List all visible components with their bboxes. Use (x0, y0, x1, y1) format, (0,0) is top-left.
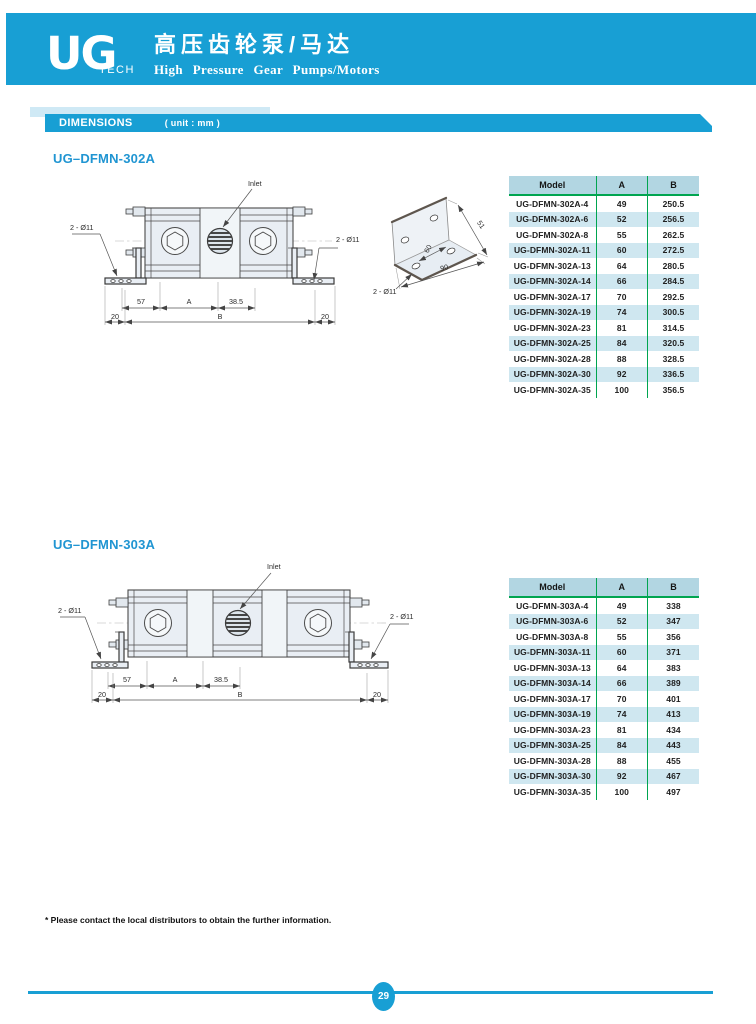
model-cell: UG-DFMN-302A-23 (509, 320, 596, 336)
b-cell: 272.5 (648, 243, 700, 259)
table-row: UG-DFMN-302A-14 66 284.5 (509, 274, 699, 290)
a-cell: 66 (596, 676, 648, 692)
header-title-chinese: 高压齿轮泵/马达 (154, 33, 354, 57)
table-row: UG-DFMN-303A-23 81 434 (509, 722, 699, 738)
b-cell: 371 (648, 645, 700, 661)
dim-A: A (187, 297, 192, 306)
model-cell: UG-DFMN-303A-4 (509, 597, 596, 614)
table-row: UG-DFMN-303A-4 49 338 (509, 597, 699, 614)
dim-B: B (238, 690, 243, 699)
a-cell: 100 (596, 382, 648, 398)
table-row: UG-DFMN-302A-4 49 250.5 (509, 195, 699, 212)
dim-B: B (218, 312, 223, 321)
table-row: UG-DFMN-303A-6 52 347 (509, 614, 699, 630)
hex-plug-right (250, 228, 277, 255)
technical-drawing-302a: Inlet 2 - Ø11 2 - Ø11 57 A 38.5 (60, 170, 510, 355)
page-number-badge: 29 (372, 982, 395, 1011)
page-number: 29 (378, 991, 389, 1002)
hex-plug-right (305, 610, 332, 637)
model-cell: UG-DFMN-303A-17 (509, 691, 596, 707)
hole-callout-left: 2 - Ø11 (58, 606, 81, 615)
table-header-row: Model A B (509, 176, 699, 195)
a-cell: 55 (596, 629, 648, 645)
a-cell: 84 (596, 336, 648, 352)
table-row: UG-DFMN-303A-14 66 389 (509, 676, 699, 692)
b-cell: 338 (648, 597, 700, 614)
footer-rule (28, 991, 713, 994)
model-cell: UG-DFMN-303A-23 (509, 722, 596, 738)
footer-note: * Please contact the local distributors … (45, 915, 331, 925)
a-cell: 88 (596, 753, 648, 769)
column-header-a: A (596, 578, 648, 597)
a-cell: 70 (596, 691, 648, 707)
b-cell: 389 (648, 676, 700, 692)
column-header-model: Model (509, 578, 596, 597)
dim-20-left: 20 (111, 312, 119, 321)
a-cell: 74 (596, 305, 648, 321)
dimension-table-302a: Model A B UG-DFMN-302A-4 49 250.5 UG-DFM… (509, 176, 699, 398)
table-row: UG-DFMN-302A-17 70 292.5 (509, 289, 699, 305)
table-header-row: Model A B (509, 578, 699, 597)
b-cell: 262.5 (648, 227, 700, 243)
table-row: UG-DFMN-303A-35 100 497 (509, 784, 699, 800)
header-title-english: High Pressure Gear Pumps/Motors (154, 62, 380, 78)
catalog-page: UG TECH 高压齿轮泵/马达 High Pressure Gear Pump… (0, 0, 756, 1024)
table-row: UG-DFMN-303A-13 64 383 (509, 660, 699, 676)
model-cell: UG-DFMN-302A-28 (509, 351, 596, 367)
table-row: UG-DFMN-302A-8 55 262.5 (509, 227, 699, 243)
table-row: UG-DFMN-302A-25 84 320.5 (509, 336, 699, 352)
b-cell: 314.5 (648, 320, 700, 336)
dim-A: A (173, 675, 178, 684)
a-cell: 88 (596, 351, 648, 367)
column-header-a: A (596, 176, 648, 195)
model-cell: UG-DFMN-303A-28 (509, 753, 596, 769)
model-cell: UG-DFMN-302A-8 (509, 227, 596, 243)
bracket-right (345, 632, 388, 668)
b-cell: 280.5 (648, 258, 700, 274)
b-cell: 467 (648, 769, 700, 785)
b-cell: 455 (648, 753, 700, 769)
dimensions-label: DIMENSIONS (59, 117, 133, 129)
model-cell: UG-DFMN-303A-13 (509, 660, 596, 676)
b-cell: 434 (648, 722, 700, 738)
b-cell: 328.5 (648, 351, 700, 367)
table-row: UG-DFMN-303A-19 74 413 (509, 707, 699, 723)
bracket-left (105, 248, 146, 284)
b-cell: 250.5 (648, 195, 700, 212)
b-cell: 292.5 (648, 289, 700, 305)
model-cell: UG-DFMN-303A-6 (509, 614, 596, 630)
model-cell: UG-DFMN-303A-35 (509, 784, 596, 800)
dimensions-section-bar: DIMENSIONS ( unit : mm ) (45, 114, 712, 132)
b-cell: 401 (648, 691, 700, 707)
b-cell: 347 (648, 614, 700, 630)
table-row: UG-DFMN-303A-8 55 356 (509, 629, 699, 645)
hole-callout-right: 2 - Ø11 (336, 235, 359, 244)
table-row: UG-DFMN-302A-13 64 280.5 (509, 258, 699, 274)
a-cell: 81 (596, 722, 648, 738)
b-cell: 256.5 (648, 212, 700, 228)
dim-20-right: 20 (321, 312, 329, 321)
a-cell: 64 (596, 258, 648, 274)
model-cell: UG-DFMN-302A-13 (509, 258, 596, 274)
a-cell: 60 (596, 243, 648, 259)
header-band: UG TECH 高压齿轮泵/马达 High Pressure Gear Pump… (6, 13, 756, 85)
column-header-b: B (648, 578, 700, 597)
hex-plug-left (145, 610, 172, 637)
b-cell: 336.5 (648, 367, 700, 383)
table-row: UG-DFMN-302A-11 60 272.5 (509, 243, 699, 259)
dim-38-5: 38.5 (214, 675, 228, 684)
a-cell: 66 (596, 274, 648, 290)
b-cell: 300.5 (648, 305, 700, 321)
dim-20-right: 20 (373, 690, 381, 699)
a-cell: 92 (596, 769, 648, 785)
table-row: UG-DFMN-302A-23 81 314.5 (509, 320, 699, 336)
bracket-dim-51: 51 (475, 219, 487, 231)
dim-38-5: 38.5 (229, 297, 243, 306)
table-row: UG-DFMN-302A-19 74 300.5 (509, 305, 699, 321)
dim-57: 57 (137, 297, 145, 306)
hole-callout-left: 2 - Ø11 (70, 223, 93, 232)
table-row: UG-DFMN-303A-11 60 371 (509, 645, 699, 661)
hole-callout-right: 2 - Ø11 (390, 612, 413, 621)
model-cell: UG-DFMN-302A-35 (509, 382, 596, 398)
table-row: UG-DFMN-302A-30 92 336.5 (509, 367, 699, 383)
b-cell: 356.5 (648, 382, 700, 398)
b-cell: 320.5 (648, 336, 700, 352)
dimension-table-303a: Model A B UG-DFMN-303A-4 49 338 UG-DFMN-… (509, 578, 699, 800)
dim-57: 57 (123, 675, 131, 684)
a-cell: 52 (596, 614, 648, 630)
model-cell: UG-DFMN-302A-17 (509, 289, 596, 305)
table-row: UG-DFMN-302A-6 52 256.5 (509, 212, 699, 228)
a-cell: 49 (596, 195, 648, 212)
section-title-302a: UG–DFMN-302A (53, 151, 155, 166)
b-cell: 356 (648, 629, 700, 645)
table-row: UG-DFMN-303A-30 92 467 (509, 769, 699, 785)
b-cell: 443 (648, 738, 700, 754)
b-cell: 413 (648, 707, 700, 723)
b-cell: 497 (648, 784, 700, 800)
model-cell: UG-DFMN-302A-14 (509, 274, 596, 290)
a-cell: 92 (596, 367, 648, 383)
a-cell: 70 (596, 289, 648, 305)
unit-label: ( unit : mm ) (165, 118, 220, 128)
table-row: UG-DFMN-303A-28 88 455 (509, 753, 699, 769)
iso-bracket: 60 51 90 2 - Ø11 (373, 198, 488, 296)
a-cell: 52 (596, 212, 648, 228)
model-cell: UG-DFMN-302A-4 (509, 195, 596, 212)
bracket-hole-callout: 2 - Ø11 (373, 287, 396, 296)
a-cell: 84 (596, 738, 648, 754)
model-cell: UG-DFMN-302A-30 (509, 367, 596, 383)
a-cell: 49 (596, 597, 648, 614)
ug-logo-tech: TECH (99, 64, 135, 76)
model-cell: UG-DFMN-303A-14 (509, 676, 596, 692)
b-cell: 383 (648, 660, 700, 676)
a-cell: 64 (596, 660, 648, 676)
inlet-label: Inlet (248, 179, 262, 188)
a-cell: 81 (596, 320, 648, 336)
a-cell: 55 (596, 227, 648, 243)
table-row: UG-DFMN-302A-28 88 328.5 (509, 351, 699, 367)
hex-plug-left (162, 228, 189, 255)
table-row: UG-DFMN-303A-17 70 401 (509, 691, 699, 707)
table-row: UG-DFMN-302A-35 100 356.5 (509, 382, 699, 398)
a-cell: 100 (596, 784, 648, 800)
model-cell: UG-DFMN-302A-19 (509, 305, 596, 321)
column-header-model: Model (509, 176, 596, 195)
column-header-b: B (648, 176, 700, 195)
table-row: UG-DFMN-303A-25 84 443 (509, 738, 699, 754)
model-cell: UG-DFMN-302A-25 (509, 336, 596, 352)
dim-20-left: 20 (98, 690, 106, 699)
b-cell: 284.5 (648, 274, 700, 290)
technical-drawing-303a: Inlet 2 - Ø11 2 - Ø11 57 A 38.5 20 B (55, 555, 455, 715)
model-cell: UG-DFMN-303A-30 (509, 769, 596, 785)
model-cell: UG-DFMN-303A-11 (509, 645, 596, 661)
section-title-303a: UG–DFMN-303A (53, 537, 155, 552)
inlet-label: Inlet (267, 562, 281, 571)
model-cell: UG-DFMN-302A-11 (509, 243, 596, 259)
model-cell: UG-DFMN-303A-19 (509, 707, 596, 723)
a-cell: 74 (596, 707, 648, 723)
model-cell: UG-DFMN-303A-8 (509, 629, 596, 645)
model-cell: UG-DFMN-303A-25 (509, 738, 596, 754)
a-cell: 60 (596, 645, 648, 661)
model-cell: UG-DFMN-302A-6 (509, 212, 596, 228)
